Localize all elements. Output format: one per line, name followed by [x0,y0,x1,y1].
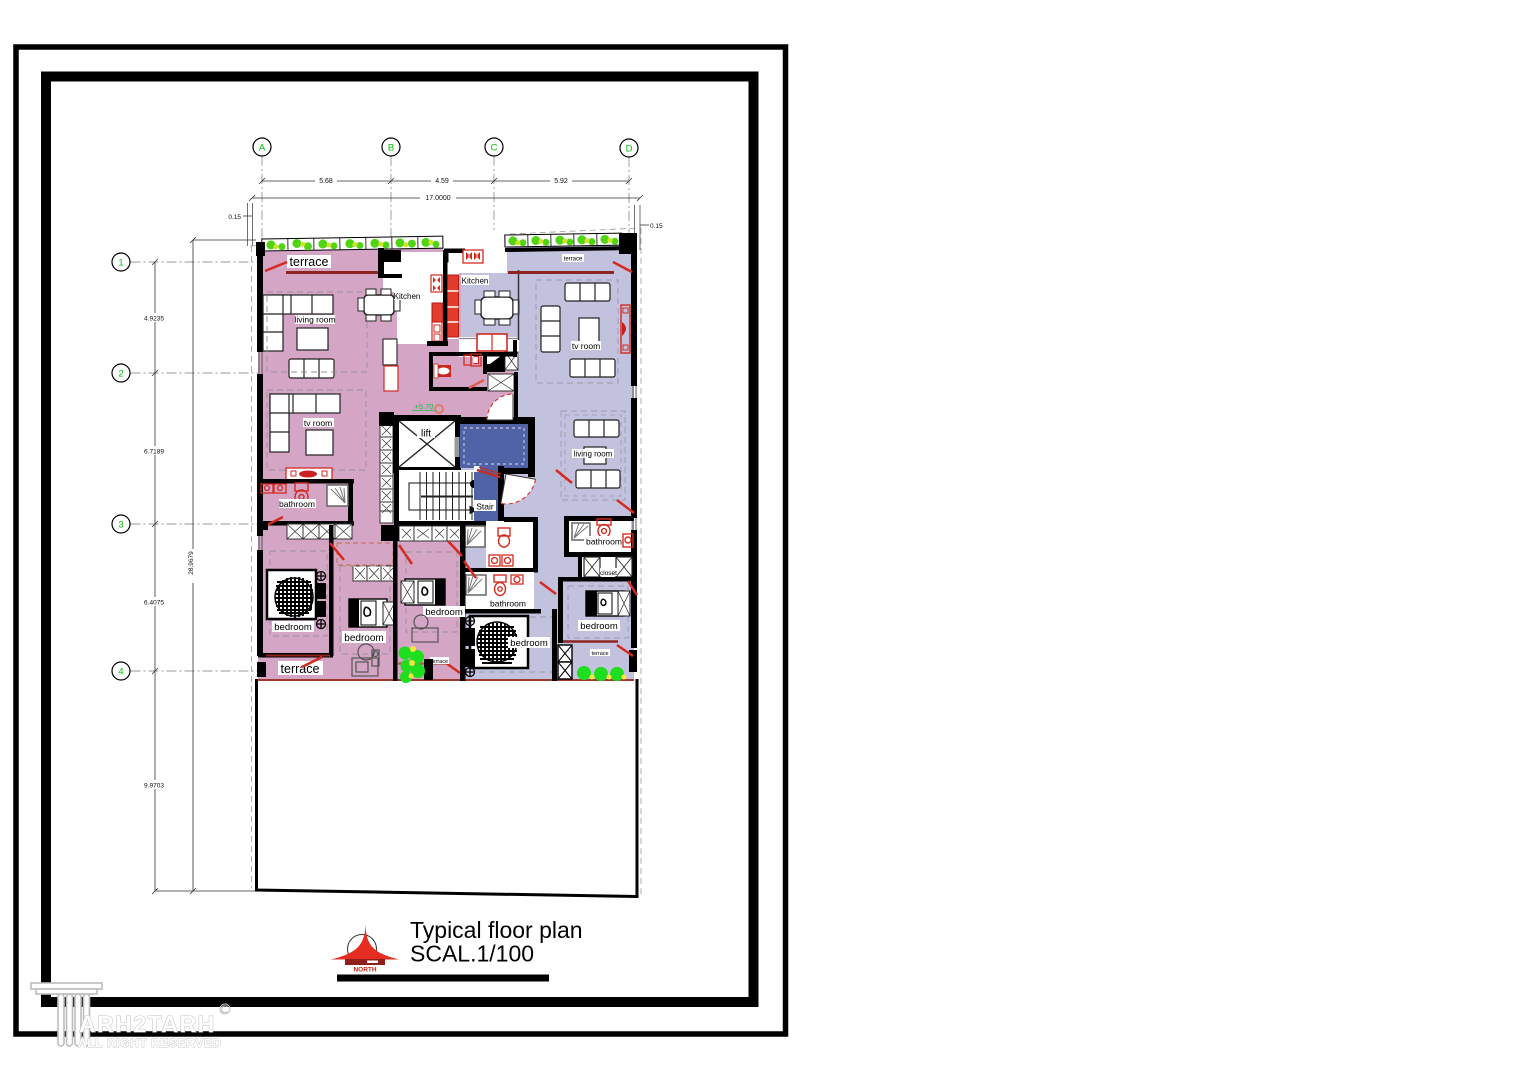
svg-text:ARH2TARH: ARH2TARH [79,1011,216,1037]
svg-text:5.92: 5.92 [554,178,568,185]
svg-text:closet: closet [600,570,617,577]
svg-text:bedroom: bedroom [510,638,548,649]
svg-text:4.59: 4.59 [435,178,449,185]
svg-text:bedroom: bedroom [580,621,618,632]
svg-text:C: C [491,143,498,154]
svg-text:tv room: tv room [572,341,600,351]
svg-text:9.9703: 9.9703 [144,783,164,790]
svg-text:28.9679: 28.9679 [188,551,195,575]
svg-text:bedroom: bedroom [344,633,383,644]
svg-text:3: 3 [118,520,123,531]
svg-text:bedroom: bedroom [425,607,463,618]
svg-text:living room: living room [294,315,335,325]
svg-text:bedroom: bedroom [274,622,312,633]
svg-text:ALL RIGHT RESERVED: ALL RIGHT RESERVED [78,1036,222,1050]
svg-text:6.7189: 6.7189 [144,449,164,456]
svg-text:living room: living room [574,450,613,459]
svg-text:bathroom: bathroom [586,537,622,547]
svg-text:bathroom: bathroom [279,499,315,509]
svg-text:4: 4 [118,667,123,678]
svg-text:5.68: 5.68 [319,178,333,185]
svg-text:+5.70: +5.70 [415,402,434,411]
svg-text:Stair: Stair [476,502,494,512]
svg-text:terrace: terrace [281,662,320,676]
svg-text:17.0000: 17.0000 [425,195,450,202]
svg-text:terrace: terrace [591,651,608,657]
svg-text:0.15: 0.15 [228,214,241,221]
svg-text:tv room: tv room [304,418,332,428]
svg-text:4.9235: 4.9235 [144,316,164,323]
svg-text:Kitchen: Kitchen [462,277,489,286]
svg-text:0.15: 0.15 [650,223,663,230]
svg-text:A: A [259,143,266,154]
svg-text:lift: lift [421,429,431,440]
svg-text:terrace: terrace [564,257,583,263]
svg-text:Typical floor plan: Typical floor plan [410,917,583,943]
svg-text:2: 2 [118,369,123,380]
svg-text:bathroom: bathroom [490,599,526,609]
svg-text:D: D [626,144,633,155]
svg-text:B: B [388,143,394,154]
svg-text:terrace: terrace [290,255,329,269]
svg-text:6.4075: 6.4075 [144,600,164,607]
svg-text:1: 1 [118,258,123,269]
svg-text:terrace: terrace [431,659,448,665]
svg-text:Kitchen: Kitchen [394,292,421,301]
svg-text:NORTH: NORTH [353,967,376,974]
svg-text:SCAL.1/100: SCAL.1/100 [410,941,534,967]
